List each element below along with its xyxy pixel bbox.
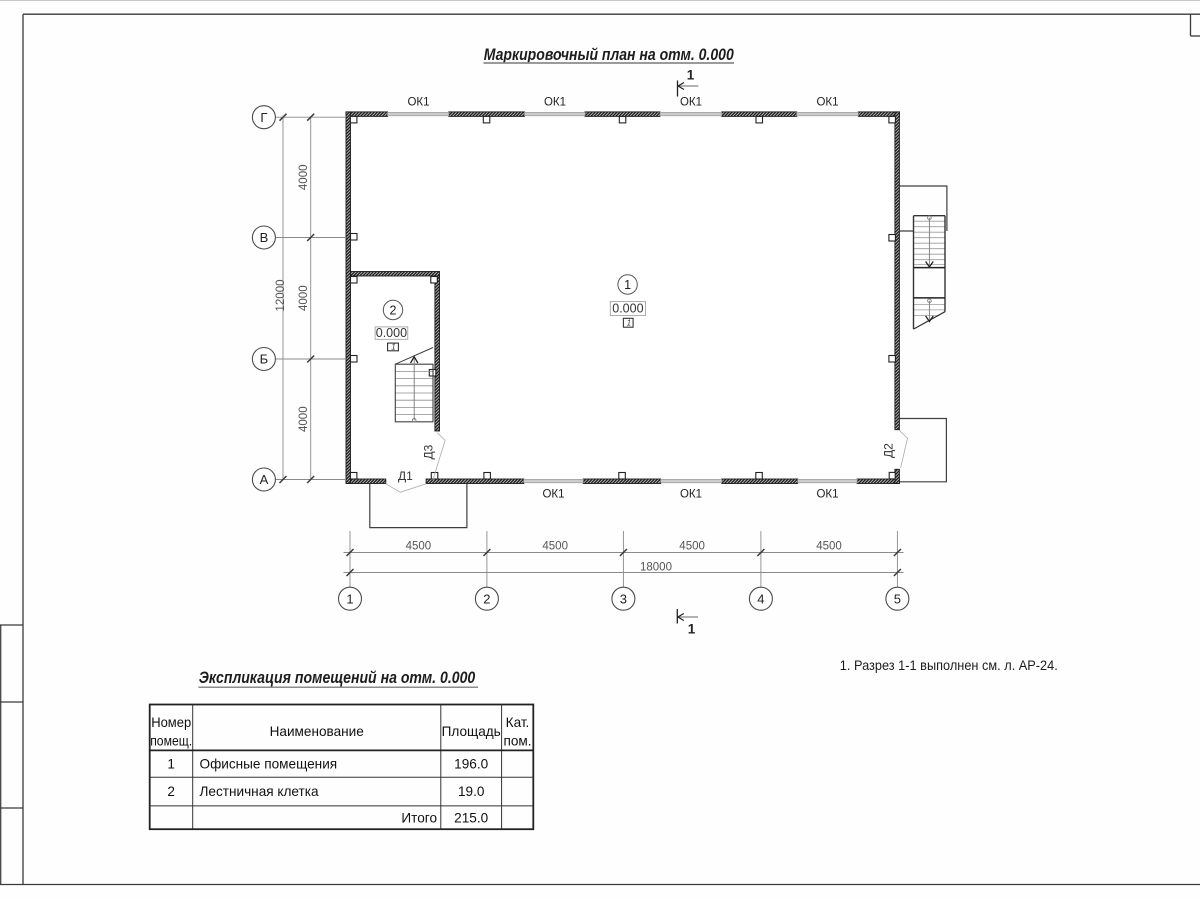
svg-text:ОК1: ОК1 bbox=[407, 97, 429, 109]
svg-text:12000: 12000 bbox=[275, 280, 287, 312]
svg-text:1: 1 bbox=[688, 622, 696, 637]
svg-text:ОК1: ОК1 bbox=[816, 97, 838, 109]
svg-text:0.000: 0.000 bbox=[612, 302, 643, 316]
svg-text:пом.: пом. bbox=[503, 734, 531, 749]
svg-text:ОК1: ОК1 bbox=[544, 97, 566, 109]
svg-text:19.0: 19.0 bbox=[458, 784, 485, 799]
svg-text:1: 1 bbox=[627, 319, 631, 328]
svg-text:2: 2 bbox=[167, 784, 175, 799]
svg-text:215.0: 215.0 bbox=[454, 811, 488, 826]
svg-text:4000: 4000 bbox=[298, 406, 310, 432]
svg-text:4500: 4500 bbox=[679, 541, 705, 553]
svg-text:Д1: Д1 bbox=[398, 469, 413, 483]
svg-text:ОК1: ОК1 bbox=[680, 489, 702, 501]
svg-text:Д3: Д3 bbox=[422, 444, 436, 459]
svg-text:Кат.: Кат. bbox=[506, 715, 530, 730]
svg-text:ОК1: ОК1 bbox=[680, 97, 702, 109]
svg-text:ОК1: ОК1 bbox=[816, 489, 838, 501]
svg-text:Г: Г bbox=[260, 110, 267, 125]
svg-text:2: 2 bbox=[483, 591, 490, 606]
svg-text:ОК1: ОК1 bbox=[542, 489, 564, 501]
svg-text:Наименование: Наименование bbox=[270, 724, 364, 739]
svg-text:4500: 4500 bbox=[816, 541, 842, 553]
svg-text:1: 1 bbox=[687, 68, 695, 83]
svg-text:4000: 4000 bbox=[298, 165, 310, 191]
svg-text:3: 3 bbox=[620, 591, 627, 606]
svg-text:Площадь: Площадь bbox=[442, 724, 501, 739]
svg-text:Лестничная клетка: Лестничная клетка bbox=[200, 784, 320, 799]
svg-text:4500: 4500 bbox=[406, 541, 432, 553]
svg-text:4000: 4000 bbox=[298, 285, 310, 311]
svg-text:В: В bbox=[260, 230, 269, 245]
svg-text:Номер: Номер bbox=[151, 715, 191, 730]
svg-text:2: 2 bbox=[390, 304, 397, 318]
svg-text:1: 1 bbox=[391, 343, 395, 352]
svg-text:Д2: Д2 bbox=[882, 443, 896, 458]
svg-text:196.0: 196.0 bbox=[454, 757, 488, 772]
svg-text:Офисные помещения: Офисные помещения bbox=[200, 757, 338, 772]
svg-text:1: 1 bbox=[624, 278, 631, 292]
svg-text:Маркировочный план на отм. 0.0: Маркировочный план на отм. 0.000 bbox=[484, 45, 734, 64]
svg-text:Итого: Итого bbox=[401, 811, 437, 826]
svg-text:1: 1 bbox=[346, 591, 353, 606]
svg-text:4500: 4500 bbox=[542, 541, 568, 553]
svg-text:18000: 18000 bbox=[640, 562, 672, 574]
svg-text:А: А bbox=[260, 472, 269, 487]
svg-text:Б: Б bbox=[260, 352, 269, 367]
svg-text:0.000: 0.000 bbox=[376, 326, 407, 340]
svg-text:помещ.: помещ. bbox=[150, 734, 192, 749]
svg-text:1: 1 bbox=[167, 757, 175, 772]
svg-text:4: 4 bbox=[757, 591, 764, 606]
svg-text:5: 5 bbox=[894, 591, 901, 606]
svg-text:1. Разрез 1-1 выполнен см. л.: 1. Разрез 1-1 выполнен см. л. АР-24. bbox=[840, 657, 1058, 673]
svg-text:Экспликация помещений на отм.: Экспликация помещений на отм. 0.000 bbox=[199, 668, 476, 687]
